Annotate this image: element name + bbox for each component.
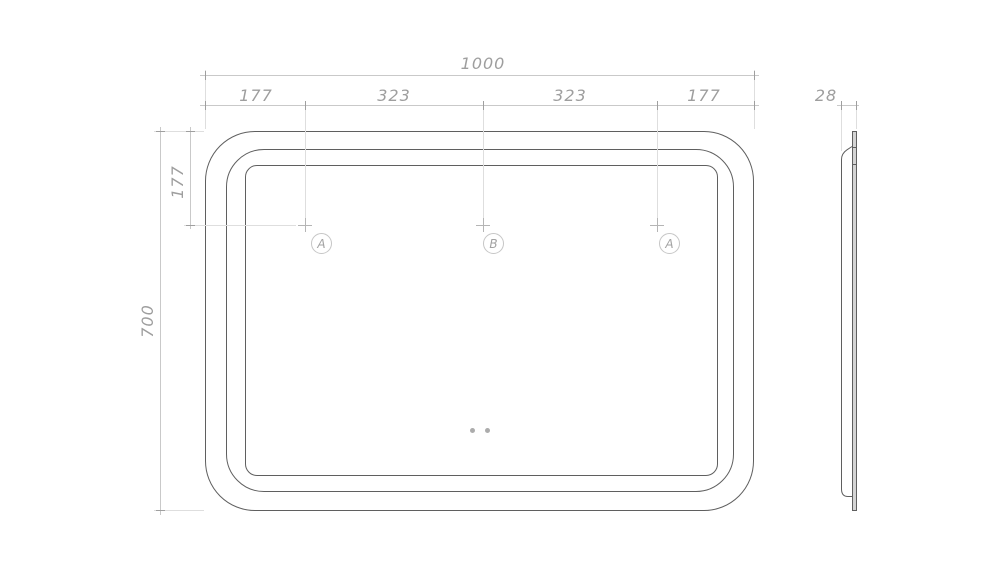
dim-tick <box>657 101 658 110</box>
dim-label-segment-4: 177 <box>687 88 721 104</box>
dimension-layer: 1000 177 323 323 177 700 177 28 <box>0 0 1000 570</box>
technical-drawing-canvas: A B A 1000 177 32 <box>0 0 1000 570</box>
dim-tick <box>483 101 484 110</box>
dimension-line-segments <box>200 105 759 106</box>
dim-tick <box>156 131 165 132</box>
extension-line <box>483 101 484 218</box>
extension-line <box>657 101 658 218</box>
dim-label-depth: 28 <box>815 88 837 104</box>
dim-label-segment-3: 323 <box>553 88 587 104</box>
dim-label-overall-height: 700 <box>140 304 156 338</box>
dim-tick <box>186 131 195 132</box>
dim-label-overall-width: 1000 <box>461 56 506 72</box>
extension-line <box>305 101 306 218</box>
extension-line <box>184 225 296 226</box>
dim-tick <box>205 71 206 80</box>
dimension-line-overall-width <box>200 75 759 76</box>
dim-tick <box>754 71 755 80</box>
dim-label-segment-1: 177 <box>239 88 273 104</box>
dim-tick <box>205 101 206 110</box>
dim-tick <box>305 101 306 110</box>
dim-label-top-offset: 177 <box>170 165 186 199</box>
dimension-line-top-offset <box>190 127 191 229</box>
dim-label-segment-2: 323 <box>377 88 411 104</box>
dim-tick <box>856 101 857 110</box>
dim-tick <box>754 101 755 110</box>
dim-tick <box>156 510 165 511</box>
dimension-line-overall-height <box>160 127 161 515</box>
dim-tick <box>841 101 842 110</box>
dim-tick <box>186 225 195 226</box>
